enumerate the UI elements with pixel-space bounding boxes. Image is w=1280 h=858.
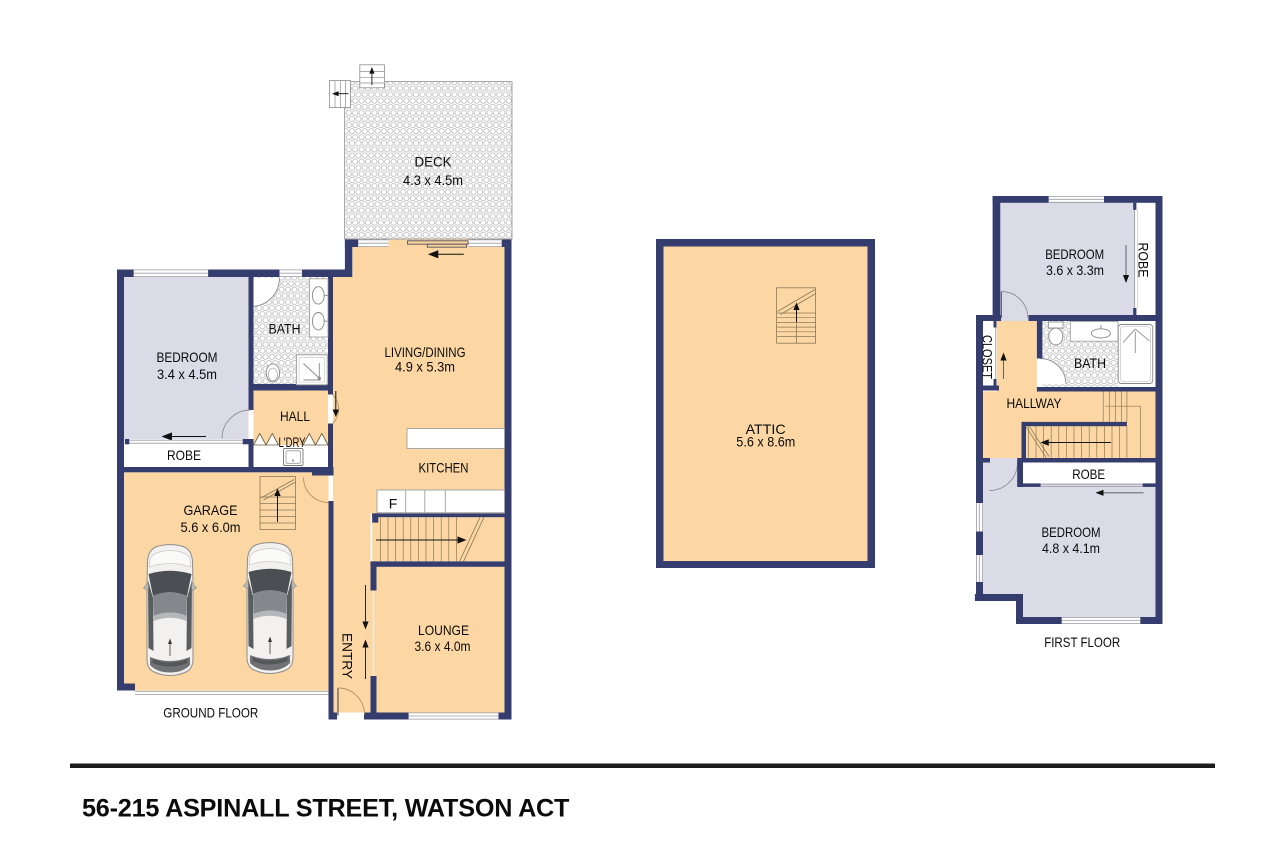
svg-text:L'DRY: L'DRY (279, 434, 306, 450)
svg-text:LOUNGE: LOUNGE (418, 622, 469, 638)
svg-text:BATH: BATH (269, 321, 301, 337)
svg-text:HALL: HALL (280, 408, 310, 424)
svg-text:ENTRY: ENTRY (340, 633, 356, 680)
svg-text:ROBE: ROBE (1072, 466, 1105, 482)
svg-text:3.4 x 4.5m: 3.4 x 4.5m (157, 366, 217, 382)
svg-text:F: F (389, 496, 398, 512)
svg-text:ROBE: ROBE (1136, 243, 1152, 278)
svg-text:56-215 ASPINALL STREET, WATSON: 56-215 ASPINALL STREET, WATSON ACT (82, 795, 570, 823)
svg-text:GARAGE: GARAGE (184, 502, 238, 518)
svg-text:3.6 x 4.0m: 3.6 x 4.0m (415, 638, 471, 654)
svg-text:DECK: DECK (415, 154, 453, 170)
svg-text:FIRST FLOOR: FIRST FLOOR (1044, 634, 1120, 650)
svg-text:5.6 x 8.6m: 5.6 x 8.6m (736, 434, 795, 450)
svg-text:BEDROOM: BEDROOM (157, 349, 218, 365)
svg-text:4.8 x 4.1m: 4.8 x 4.1m (1042, 540, 1100, 556)
svg-text:4.9 x 5.3m: 4.9 x 5.3m (395, 359, 455, 375)
svg-text:GROUND FLOOR: GROUND FLOOR (163, 705, 258, 721)
svg-text:HALLWAY: HALLWAY (1007, 395, 1063, 411)
svg-text:BATH: BATH (1074, 355, 1106, 371)
svg-text:BEDROOM: BEDROOM (1042, 524, 1101, 540)
svg-text:KITCHEN: KITCHEN (419, 460, 469, 476)
svg-text:CLOSET: CLOSET (980, 335, 996, 379)
svg-text:3.6 x 3.3m: 3.6 x 3.3m (1046, 262, 1104, 278)
svg-text:5.6 x 6.0m: 5.6 x 6.0m (181, 519, 241, 535)
svg-text:4.3 x 4.5m: 4.3 x 4.5m (403, 172, 463, 188)
svg-text:ROBE: ROBE (167, 447, 201, 463)
svg-text:BEDROOM: BEDROOM (1045, 246, 1104, 262)
